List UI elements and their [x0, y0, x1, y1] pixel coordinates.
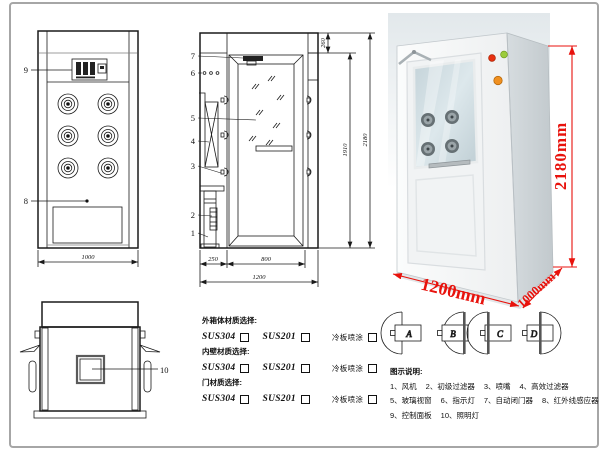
material-section-door: 门材质选择: SUS304 SUS201 冷板喷涂	[202, 379, 394, 404]
material-option: 冷板喷涂	[332, 364, 377, 373]
material-checkbox[interactable]	[301, 364, 310, 373]
door-option-d: D	[523, 312, 562, 354]
door-option-d-label: D	[530, 329, 538, 339]
control-panel	[72, 59, 107, 80]
callout-10: 10	[160, 365, 169, 375]
indicator-light-red	[489, 55, 496, 62]
dim-250-label: 250	[208, 256, 219, 263]
legend-row: 9、控制面板 10、照明灯	[390, 409, 592, 424]
legend-item: 1、风机	[390, 380, 417, 395]
material-option: 冷板喷涂	[332, 333, 377, 342]
front-nozzles	[58, 94, 118, 178]
legend-row: 5、玻璃视窗 6、指示灯 7、自动闭门器 8、红外线感应器	[390, 394, 592, 409]
material-checkbox[interactable]	[368, 333, 377, 342]
door-swing-options: A B C D	[381, 312, 561, 354]
material-option: SUS201	[262, 333, 309, 343]
material-checkbox[interactable]	[301, 395, 310, 404]
callout-1: 1	[191, 228, 195, 238]
material-checkbox[interactable]	[240, 395, 249, 404]
side-view-width-dims: 250 800 1200	[200, 250, 318, 287]
legend-item: 7、自动闭门器	[484, 394, 533, 409]
left-door-swing-arrow	[20, 345, 40, 352]
side-view-drawing: 7 6 5 4 3 2 1 260 1910 2180 250	[191, 33, 375, 287]
legend: 图示说明: 1、风机 2、初级过滤器 3、喷嘴 4、高效过滤器 5、玻璃视窗 6…	[390, 365, 592, 424]
dim-1200-label: 1200	[253, 274, 267, 281]
legend-row: 1、风机 2、初级过滤器 3、喷嘴 4、高效过滤器	[390, 380, 592, 395]
right-door-swing-arrow	[140, 345, 160, 352]
door-option-a-label: A	[405, 329, 412, 339]
legend-item: 5、玻璃视窗	[390, 394, 432, 409]
material-option: SUS304	[202, 333, 249, 343]
callout-6: 6	[191, 68, 195, 78]
door-side-view	[229, 55, 303, 246]
door-option-b-label: B	[450, 329, 456, 339]
legend-item: 2、初级过滤器	[426, 380, 475, 395]
legend-item: 9、控制面板	[390, 409, 432, 424]
callout-7: 7	[191, 51, 195, 61]
material-section-label: 内壁材质选择:	[202, 348, 394, 356]
glass-reflection-marks	[249, 76, 284, 145]
materials-selection: 外箱体材质选择: SUS304 SUS201 冷板喷涂 内壁材质选择: SUS3…	[202, 312, 394, 410]
dim-260-label: 260	[320, 37, 327, 48]
callout-4: 4	[191, 136, 196, 146]
material-checkbox[interactable]	[240, 333, 249, 342]
material-section-inner-wall: 内壁材质选择: SUS304 SUS201 冷板喷涂	[202, 348, 394, 373]
legend-item: 6、指示灯	[441, 394, 475, 409]
legend-item: 10、照明灯	[441, 409, 479, 424]
photo-3d-view: 2180mm 1200mm 1000mm	[388, 13, 577, 311]
door-option-c: C	[467, 312, 511, 354]
fan-filter-column	[199, 72, 224, 248]
material-checkbox[interactable]	[240, 364, 249, 373]
material-section-label: 门材质选择:	[202, 379, 394, 387]
legend-title: 图示说明:	[390, 365, 592, 380]
door-option-b: B	[438, 312, 469, 354]
indicator-light-green	[501, 51, 508, 58]
legend-item: 4、高效过滤器	[520, 380, 569, 395]
door-closer	[243, 56, 263, 61]
material-option: SUS304	[202, 395, 249, 405]
return-air-grille	[53, 207, 122, 243]
right-handle	[144, 361, 151, 392]
material-option: SUS201	[262, 395, 309, 405]
legend-item: 8、红外线感应器	[542, 394, 599, 409]
ceiling-light	[77, 356, 104, 383]
material-option: SUS201	[262, 364, 309, 374]
callout-9: 9	[24, 65, 28, 75]
left-handle	[29, 361, 36, 392]
callout-8: 8	[24, 196, 28, 206]
material-checkbox[interactable]	[368, 395, 377, 404]
material-checkbox[interactable]	[368, 364, 377, 373]
door-option-c-label: C	[497, 329, 504, 339]
material-option: 冷板喷涂	[332, 395, 377, 404]
material-option: SUS304	[202, 364, 249, 374]
front-view-drawing: 9 8 1000	[24, 31, 138, 267]
callout-5: 5	[191, 113, 195, 123]
door-handle-side	[256, 146, 292, 151]
emergency-button	[494, 76, 502, 84]
top-view-drawing: 10	[20, 302, 169, 418]
air-shower-spec-sheet: 9 8 1000	[0, 0, 600, 450]
dim-1910-label: 1910	[342, 143, 349, 157]
legend-item: 3、喷嘴	[484, 380, 511, 395]
dim-2180-label: 2180	[362, 133, 369, 147]
dim-1000-label: 1000	[82, 254, 96, 261]
material-section-outer-box: 外箱体材质选择: SUS304 SUS201 冷板喷涂	[202, 317, 394, 342]
material-checkbox[interactable]	[301, 333, 310, 342]
photo-dim-height: 2180mm	[551, 122, 570, 190]
callout-2: 2	[191, 210, 195, 220]
dim-800-label: 800	[261, 256, 272, 263]
material-section-label: 外箱体材质选择:	[202, 317, 394, 325]
callout-3: 3	[191, 161, 195, 171]
side-wall-nozzles	[221, 96, 311, 176]
